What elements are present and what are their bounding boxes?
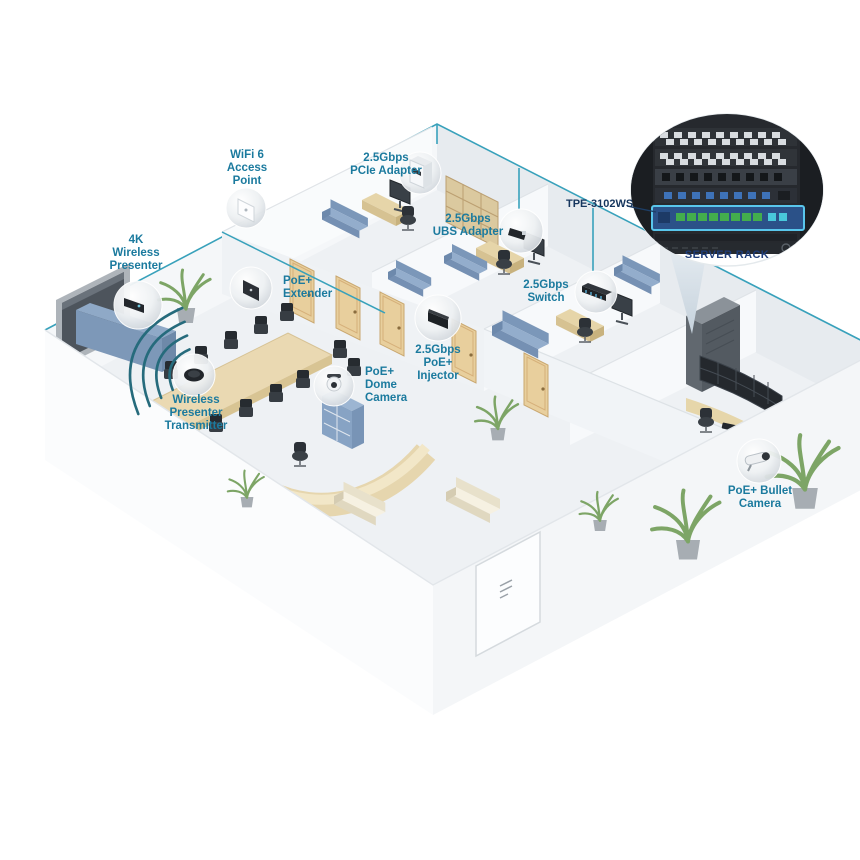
label-presenter-transmitter: WirelessPresenterTransmitter — [165, 394, 228, 433]
callout-4k-presenter — [114, 281, 162, 329]
isometric-office-network-diagram: WiFi 6AccessPoint 2.5GbpsPCIe Adapter 2.… — [0, 0, 860, 860]
label-switch: 2.5GbpsSwitch — [523, 279, 568, 305]
label-tpe-3102ws-model: TPE-3102WS — [566, 198, 633, 210]
callout-presenter-transmitter — [173, 354, 215, 396]
callout-bullet-camera — [737, 439, 781, 483]
label-pcie-adapter: 2.5GbpsPCIe Adapter — [350, 152, 422, 178]
label-4k-presenter: 4KWirelessPresenter — [109, 234, 162, 273]
callout-usb-adapter — [499, 209, 543, 253]
callout-poe-extender — [230, 267, 272, 309]
label-server-rack-caption: SERVER RACK — [685, 249, 769, 261]
callout-wifi6-access-point — [226, 188, 266, 228]
label-usb-adapter: 2.5GbpsUBS Adapter — [433, 213, 504, 239]
label-dome-camera: PoE+DomeCamera — [365, 366, 407, 405]
label-poe-injector: 2.5GbpsPoE+Injector — [415, 344, 460, 383]
label-poe-extender: PoE+Extender — [283, 275, 332, 301]
label-wifi6-access-point: WiFi 6AccessPoint — [227, 149, 267, 188]
floorplan-scene — [0, 0, 860, 860]
callout-poe-injector — [415, 295, 461, 341]
callout-dome-camera — [314, 366, 354, 406]
label-bullet-camera: PoE+ BulletCamera — [728, 485, 792, 511]
callout-switch — [575, 271, 617, 313]
